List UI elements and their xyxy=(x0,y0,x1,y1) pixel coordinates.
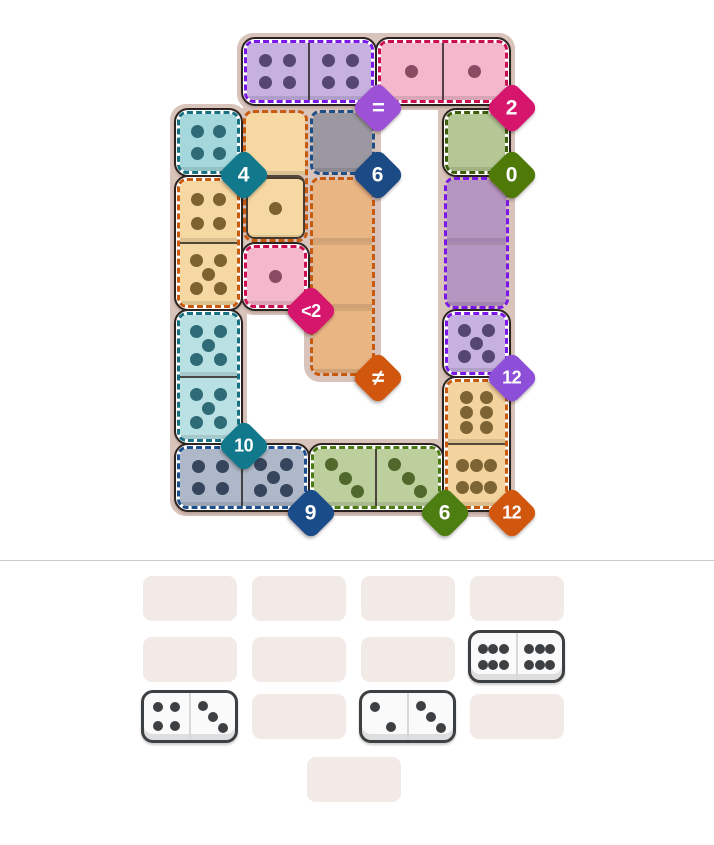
board-cell[interactable] xyxy=(247,43,308,100)
pip xyxy=(426,712,436,722)
pip xyxy=(402,472,415,485)
board-cell[interactable] xyxy=(448,382,505,443)
domino-region-orange-ghost-tall[interactable] xyxy=(310,177,375,376)
constraint-badge-label: 12 xyxy=(502,369,521,387)
board-cell[interactable] xyxy=(448,443,505,506)
pip xyxy=(191,147,204,160)
pip xyxy=(202,402,215,415)
board-cell[interactable] xyxy=(308,43,371,100)
domino-region-wheat-pair-left[interactable] xyxy=(174,175,243,311)
pip xyxy=(190,282,203,295)
pip xyxy=(370,702,380,712)
pip xyxy=(254,484,267,497)
pip xyxy=(191,193,204,206)
domino-6-6[interactable] xyxy=(468,630,565,683)
tray-slot xyxy=(470,576,564,621)
pip xyxy=(198,701,208,711)
pip xyxy=(190,388,203,401)
pip xyxy=(545,644,555,654)
pip xyxy=(499,644,509,654)
domino-half-right xyxy=(516,633,563,680)
pip xyxy=(480,406,493,419)
pip xyxy=(478,660,488,670)
pip xyxy=(484,459,497,472)
pip xyxy=(456,481,469,494)
pip xyxy=(191,125,204,138)
pip xyxy=(524,660,534,670)
domino-region-purple-ghost-tall[interactable] xyxy=(444,177,509,309)
pip xyxy=(216,460,229,473)
pip xyxy=(524,644,534,654)
pip xyxy=(208,712,218,722)
pip xyxy=(216,482,229,495)
constraint-badge-label: ≠ xyxy=(372,367,384,389)
pip xyxy=(482,324,495,337)
puzzle-stage: =2460<2≠12109612 xyxy=(0,0,714,845)
pip xyxy=(414,485,427,498)
pip xyxy=(460,391,473,404)
board-cell[interactable] xyxy=(180,242,237,305)
pip xyxy=(213,125,226,138)
pip xyxy=(283,54,296,67)
board-cell[interactable] xyxy=(247,248,304,305)
pip xyxy=(339,472,352,485)
board-cell[interactable] xyxy=(381,43,442,100)
pip xyxy=(460,421,473,434)
constraint-badge-label: 6 xyxy=(372,165,383,186)
pip xyxy=(468,65,481,78)
constraint-badge-label: 2 xyxy=(506,98,517,119)
domino-half-right xyxy=(407,693,454,740)
pip xyxy=(269,270,282,283)
pip xyxy=(405,65,418,78)
pip xyxy=(214,353,227,366)
constraint-badge-label: 6 xyxy=(439,503,450,524)
board-cell[interactable] xyxy=(447,180,506,242)
board-cell[interactable] xyxy=(180,181,237,242)
pip xyxy=(190,325,203,338)
board-cell[interactable] xyxy=(375,449,438,506)
pip xyxy=(388,458,401,471)
pip xyxy=(322,76,335,89)
pip xyxy=(458,350,471,363)
board-cell[interactable] xyxy=(180,376,237,439)
domino-half-right xyxy=(189,693,236,740)
domino-half-left xyxy=(144,693,189,740)
pip xyxy=(470,459,483,472)
constraint-badge-label: 0 xyxy=(506,165,517,186)
tray-divider xyxy=(0,560,714,561)
pip xyxy=(322,54,335,67)
pip xyxy=(456,459,469,472)
pip xyxy=(478,644,488,654)
domino-region-body xyxy=(310,177,375,376)
pip xyxy=(480,421,493,434)
pip xyxy=(218,723,228,733)
pip xyxy=(470,481,483,494)
pip xyxy=(214,325,227,338)
pip xyxy=(416,701,426,711)
pip xyxy=(499,660,509,670)
pip xyxy=(269,202,282,215)
domino-region-body xyxy=(177,178,240,308)
domino-region-body xyxy=(311,446,441,509)
board-cell[interactable] xyxy=(447,242,506,307)
pip xyxy=(170,702,180,712)
pip xyxy=(482,350,495,363)
tray-slot xyxy=(143,576,237,621)
pip xyxy=(153,702,163,712)
board-cell[interactable] xyxy=(448,315,505,372)
tray-slot xyxy=(361,637,455,682)
pip xyxy=(458,324,471,337)
pip xyxy=(460,406,473,419)
domino-half-left xyxy=(471,633,516,680)
pip xyxy=(259,54,272,67)
pip xyxy=(192,460,205,473)
domino-region-teal-pair-left[interactable] xyxy=(174,309,243,445)
board-cell[interactable] xyxy=(180,315,237,376)
pip xyxy=(213,147,226,160)
pip xyxy=(190,254,203,267)
pip xyxy=(267,471,280,484)
pip xyxy=(259,76,272,89)
pip xyxy=(488,644,498,654)
tray-slot xyxy=(252,576,346,621)
tray-slot xyxy=(143,637,237,682)
tray-slot xyxy=(361,576,455,621)
domino-region-sage-pair-bottom[interactable] xyxy=(308,443,444,512)
pip xyxy=(202,268,215,281)
pip xyxy=(545,660,555,670)
domino-region-body xyxy=(177,312,240,442)
domino-region-body xyxy=(444,177,509,309)
pip xyxy=(488,660,498,670)
pip xyxy=(480,391,493,404)
pip xyxy=(436,723,446,733)
pip xyxy=(214,416,227,429)
tray-slot xyxy=(470,694,564,739)
domino-region-purple-pair-top[interactable] xyxy=(241,37,377,106)
constraint-badge-label: = xyxy=(372,97,384,119)
pip xyxy=(202,339,215,352)
tray-slot xyxy=(307,757,401,802)
pip xyxy=(214,282,227,295)
domino-4-3[interactable] xyxy=(141,690,238,743)
pip xyxy=(386,722,396,732)
pip xyxy=(351,485,364,498)
board-cell[interactable] xyxy=(442,43,505,100)
tray-slot xyxy=(252,694,346,739)
domino-region-pink-pair-top[interactable] xyxy=(375,37,511,106)
constraint-badge-label: 9 xyxy=(305,503,316,524)
pip xyxy=(535,644,545,654)
pip xyxy=(170,721,180,731)
pip xyxy=(214,254,227,267)
domino-region-body xyxy=(378,40,508,103)
pip xyxy=(346,76,359,89)
pip xyxy=(280,458,293,471)
pip xyxy=(190,353,203,366)
board-cell[interactable] xyxy=(313,180,372,242)
domino-region-body xyxy=(445,379,508,509)
pip xyxy=(191,217,204,230)
pip xyxy=(325,458,338,471)
constraint-badge-label: <2 xyxy=(301,302,321,320)
domino-region-wheat-pair-right[interactable] xyxy=(442,376,511,512)
pip xyxy=(280,484,293,497)
pip xyxy=(283,76,296,89)
pip xyxy=(153,721,163,731)
tray-slot xyxy=(252,637,346,682)
pip xyxy=(470,337,483,350)
domino-2-3[interactable] xyxy=(359,690,456,743)
constraint-badge-label: 4 xyxy=(238,165,249,186)
pip xyxy=(484,481,497,494)
pip xyxy=(535,660,545,670)
pip xyxy=(346,54,359,67)
pip xyxy=(190,416,203,429)
pip xyxy=(192,482,205,495)
domino-region-body xyxy=(244,40,374,103)
domino-half-left xyxy=(362,693,407,740)
constraint-badge-label: 12 xyxy=(502,504,521,522)
pip xyxy=(214,388,227,401)
pip xyxy=(213,193,226,206)
pip xyxy=(213,217,226,230)
constraint-badge-label: 10 xyxy=(234,437,253,455)
